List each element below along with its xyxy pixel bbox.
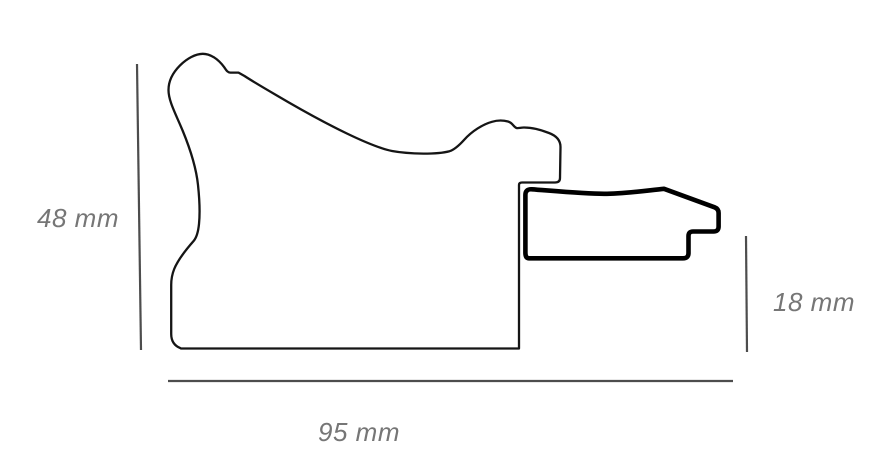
main-profile-outline xyxy=(169,54,561,349)
insert-height-dimension-line xyxy=(746,236,747,352)
diagram-canvas: 48 mm 18 mm 95 mm xyxy=(0,0,892,476)
moulding-profile-diagram: 48 mm 18 mm 95 mm xyxy=(0,0,892,476)
height-dimension-label: 48 mm xyxy=(37,203,119,233)
width-dimension-label: 95 mm xyxy=(318,417,400,447)
insert-profile-outline xyxy=(525,189,718,258)
insert-height-dimension-label: 18 mm xyxy=(773,287,855,317)
height-dimension-line xyxy=(137,64,141,350)
